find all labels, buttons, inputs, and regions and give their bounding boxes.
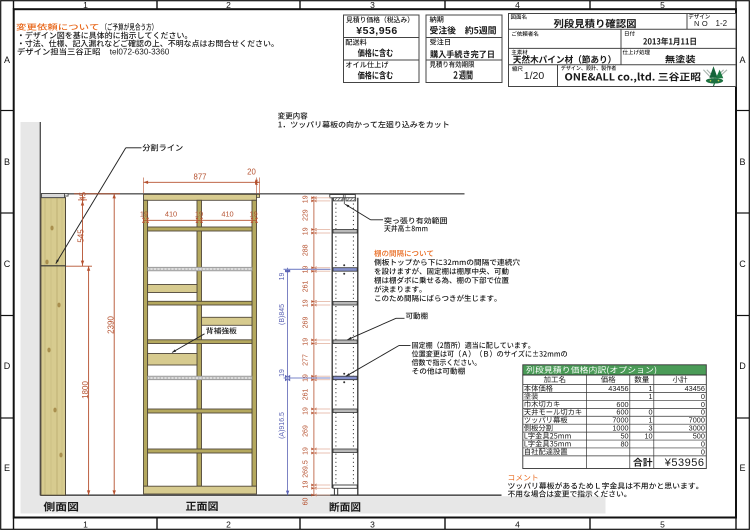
svg-text:D: D bbox=[4, 361, 11, 371]
svg-text:D: D bbox=[739, 361, 746, 371]
svg-text:C: C bbox=[739, 259, 746, 269]
svg-text:1: 1 bbox=[649, 392, 653, 401]
svg-text:1/20: 1/20 bbox=[524, 70, 545, 82]
svg-text:3: 3 bbox=[370, 520, 375, 530]
svg-text:0: 0 bbox=[701, 447, 705, 456]
svg-text:¥53956: ¥53956 bbox=[664, 457, 705, 469]
svg-text:545: 545 bbox=[76, 229, 85, 243]
svg-text:19: 19 bbox=[302, 227, 309, 235]
svg-text:19: 19 bbox=[140, 209, 148, 218]
svg-text:19: 19 bbox=[302, 195, 309, 203]
svg-text:269: 269 bbox=[302, 317, 309, 329]
svg-text:80: 80 bbox=[620, 439, 628, 448]
svg-text:4: 4 bbox=[515, 520, 520, 530]
svg-text:1: 1 bbox=[83, 520, 88, 530]
svg-text:tel072-630-3360: tel072-630-3360 bbox=[110, 48, 170, 57]
svg-text:1-2: 1-2 bbox=[716, 19, 728, 28]
svg-text:261: 261 bbox=[302, 388, 309, 400]
svg-text:19: 19 bbox=[302, 407, 309, 415]
svg-text:2390: 2390 bbox=[107, 316, 116, 334]
svg-text:3: 3 bbox=[370, 0, 375, 10]
svg-text:19: 19 bbox=[302, 299, 309, 307]
svg-text:410: 410 bbox=[165, 209, 177, 218]
svg-text:19: 19 bbox=[279, 369, 286, 377]
svg-text:43456: 43456 bbox=[608, 384, 628, 393]
svg-text:1: 1 bbox=[83, 0, 88, 10]
svg-text:B: B bbox=[739, 157, 745, 167]
svg-text:2: 2 bbox=[226, 0, 231, 10]
svg-text:269: 269 bbox=[302, 425, 309, 437]
svg-text:C: C bbox=[4, 259, 11, 269]
svg-text:19: 19 bbox=[279, 273, 286, 281]
svg-text:A: A bbox=[739, 55, 745, 65]
svg-text:60: 60 bbox=[302, 498, 309, 506]
svg-text:NO: NO bbox=[694, 19, 710, 28]
svg-text:45: 45 bbox=[79, 191, 88, 200]
svg-text:¥53,956: ¥53,956 bbox=[356, 25, 397, 37]
svg-text:4: 4 bbox=[515, 0, 520, 10]
svg-text:410: 410 bbox=[221, 209, 233, 218]
svg-text:E: E bbox=[739, 463, 745, 473]
svg-text:(A)916.5: (A)916.5 bbox=[279, 412, 286, 439]
svg-text:19: 19 bbox=[302, 481, 309, 489]
svg-text:E: E bbox=[4, 463, 10, 473]
svg-text:288: 288 bbox=[302, 244, 309, 256]
svg-text:1800: 1800 bbox=[81, 381, 90, 399]
svg-text:2: 2 bbox=[226, 520, 231, 530]
svg-text:19: 19 bbox=[195, 209, 203, 218]
svg-text:19: 19 bbox=[249, 209, 257, 218]
svg-text:261: 261 bbox=[302, 280, 309, 292]
svg-text:20: 20 bbox=[247, 168, 256, 177]
svg-text:10: 10 bbox=[644, 432, 652, 441]
svg-text:B: B bbox=[4, 157, 10, 167]
svg-text:269.5: 269.5 bbox=[302, 460, 309, 478]
svg-text:(B)845: (B)845 bbox=[279, 304, 286, 325]
svg-text:277: 277 bbox=[302, 354, 309, 366]
svg-text:229: 229 bbox=[302, 209, 309, 221]
svg-text:19: 19 bbox=[302, 447, 309, 455]
svg-text:A: A bbox=[4, 55, 10, 65]
svg-text:5: 5 bbox=[660, 0, 665, 10]
svg-text:5: 5 bbox=[660, 520, 665, 530]
svg-text:877: 877 bbox=[193, 172, 206, 181]
svg-text:19: 19 bbox=[302, 338, 309, 346]
